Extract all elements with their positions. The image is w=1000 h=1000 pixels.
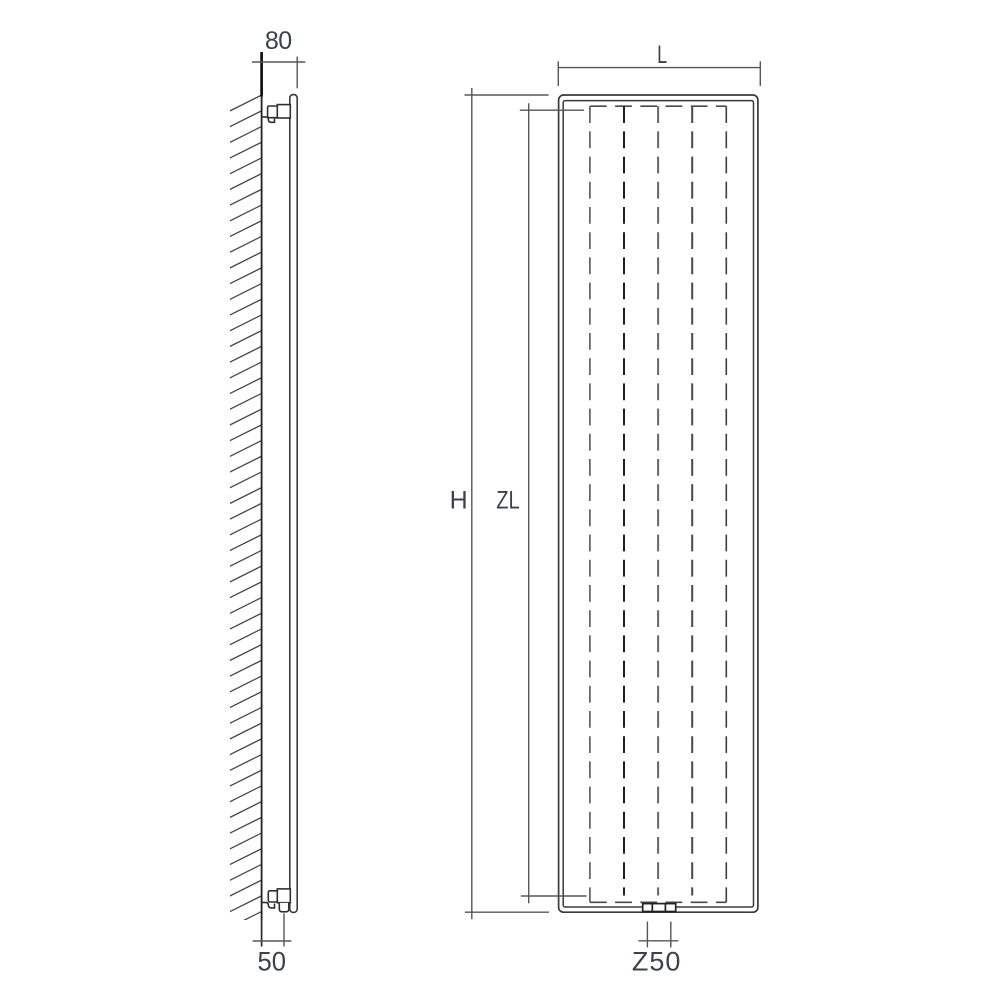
svg-text:50: 50 [258,946,287,976]
svg-text:80: 80 [265,27,292,55]
svg-text:Z50: Z50 [632,947,681,977]
svg-text:L: L [657,41,667,69]
svg-text:H: H [450,486,468,514]
svg-text:ZL: ZL [496,486,520,514]
